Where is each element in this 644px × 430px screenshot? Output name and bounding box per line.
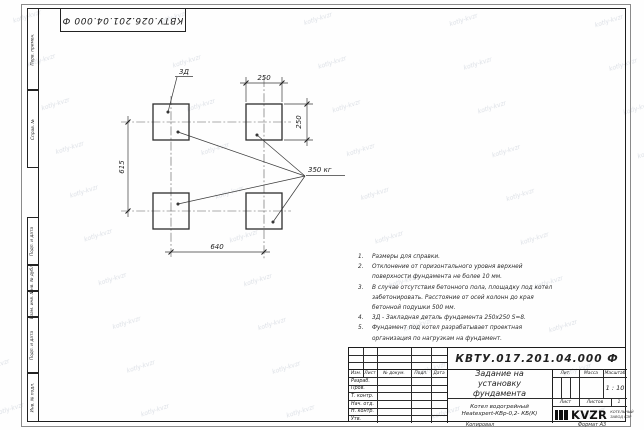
col-podp: Подп. [411, 369, 431, 377]
margin-label-text: Подп. и дата [31, 330, 36, 359]
margin-label-inv-dubl: Инв. № дубл. [27, 265, 39, 291]
dim-right-label: 250 [295, 115, 303, 129]
note-item: 2.Отклонение от горизонтального уровня в… [358, 262, 554, 282]
margin-label-perv-primen: Перв. примен. [27, 8, 39, 90]
load-label: 350 кг [308, 166, 332, 174]
margin-label-inv-podl: Инв. № подл. [27, 373, 39, 422]
col-izm: Изм. [349, 369, 363, 377]
top-rotated-stamp: КВТУ.026.201.04.000 Ф [60, 8, 186, 32]
lit-label: Лит. [552, 369, 579, 377]
dim-bottom-label: 640 [210, 243, 224, 251]
note-number: 4. [358, 313, 372, 323]
margin-label-sprav-no: Справ. № [27, 90, 39, 168]
row-prov: Пров. [349, 385, 377, 392]
col-data: Дата [431, 369, 447, 377]
sheets-label: Листов [579, 398, 611, 406]
centerlines [121, 78, 291, 259]
leader-lines [167, 77, 345, 224]
margin-label-podp-data-2: Подп. и дата [27, 317, 39, 373]
doc-number: КВТУ.017.201.04.000 Ф [447, 348, 627, 369]
product-line1: Котел водогрейный [470, 404, 529, 411]
scale-label: Масштаб [603, 369, 627, 377]
col-list: Лист [363, 369, 377, 377]
note-text: Фундамент под котел разрабатывает проект… [372, 323, 554, 343]
note-number: 2. [358, 262, 372, 282]
drawing-sheet: kotly-kvzr Перв. примен. Справ. № Подп. … [0, 0, 644, 430]
company-name: КОТЕЛЬНЫЙ ЗАВОД КЗР [610, 410, 633, 419]
row-nkontr: Н. контр. [349, 408, 377, 415]
row-utv: Утв. [349, 415, 377, 423]
col-docnum: № докум. [377, 369, 411, 377]
tb-line [570, 377, 571, 398]
company-logo-cell: KVZR КОТЕЛЬНЫЙ ЗАВОД КЗР [552, 406, 627, 423]
kvzr-logo-icon [555, 410, 568, 420]
note-item: 4.3Д - Закладная деталь фундамента 250х2… [358, 313, 554, 323]
embedded-detail-label: 3Д [179, 68, 189, 76]
title-block: КВТУ.017.201.04.000 Ф Задание на установ… [348, 347, 626, 422]
note-item: 1.Размеры для справки. [358, 252, 554, 262]
note-number: 3. [358, 283, 372, 314]
margin-label-text: Подп. и дата [31, 226, 36, 255]
company-line2: ЗАВОД КЗР [610, 415, 631, 419]
note-text: Отклонение от горизонтального уровня вер… [372, 262, 554, 282]
dim-top-label: 250 [257, 74, 271, 82]
note-item: 3.В случае отсутствия бетонного пола, пл… [358, 283, 554, 314]
product-line2: Heatexpert-КВр-0,2- КБ(К) [462, 411, 538, 418]
dimension-lines [128, 77, 313, 252]
sheet-label: Лист [552, 398, 579, 406]
scale-value: 1 : 10 [603, 377, 627, 398]
margin-label-text: Справ. № [31, 119, 36, 140]
product-name: Котел водогрейный Heatexpert-КВр-0,2- КБ… [447, 398, 552, 423]
note-number: 5. [358, 323, 372, 343]
note-text: 3Д - Закладная деталь фундамента 250х250… [372, 313, 554, 323]
note-item: 5.Фундамент под котел разрабатывает прое… [358, 323, 554, 343]
margin-label-text: Инв. № дубл. [31, 263, 36, 292]
footer-copied: Копировал [430, 422, 530, 428]
note-text: Размеры для справки. [372, 252, 554, 262]
document-title: Задание на установку фундамента [447, 369, 552, 398]
margin-label-text: Взам. инв. № [31, 289, 36, 318]
margin-label-podp-data-1: Подп. и дата [27, 217, 39, 265]
margin-label-vzam-inv: Взам. инв. № [27, 291, 39, 317]
row-nachotd: Нач. отд. [349, 400, 377, 408]
row-tkontr: Т. контр. [349, 392, 377, 400]
margin-label-text: Перв. примен. [31, 33, 36, 65]
kvzr-logo-text: KVZR [571, 408, 607, 422]
tb-line [349, 362, 447, 363]
top-stamp-text: КВТУ.026.201.04.000 Ф [62, 15, 183, 25]
tb-line [561, 377, 562, 398]
company-line1: КОТЕЛЬНЫЙ [610, 410, 633, 414]
dim-left-label: 615 [118, 160, 126, 174]
note-text: В случае отсутствия бетонного пола, площ… [372, 283, 554, 314]
tb-line [349, 355, 447, 356]
note-number: 1. [358, 252, 372, 262]
margin-label-text: Инв. № подл. [31, 383, 36, 413]
footer-format: Формат А3 [552, 422, 632, 428]
notes-list: 1.Размеры для справки. 2.Отклонение от г… [358, 252, 554, 344]
sheets-value: 1 [611, 398, 627, 406]
row-razrab: Разраб. [349, 377, 377, 385]
mass-label: Масса [579, 369, 603, 377]
